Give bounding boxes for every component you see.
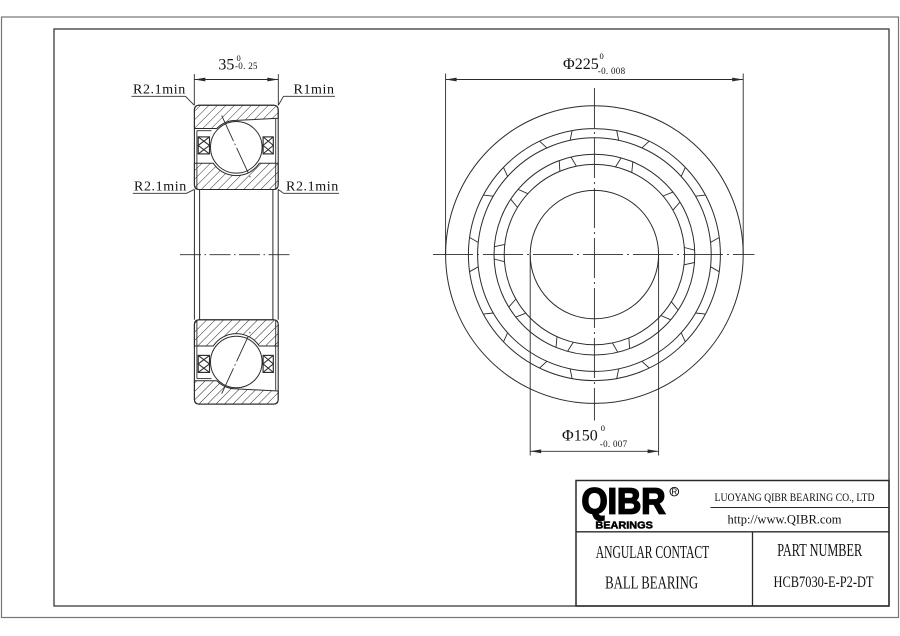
svg-text:HCB7030-E-P2-DT: HCB7030-E-P2-DT [774,574,874,591]
svg-text:http://www.QIBR.com: http://www.QIBR.com [728,513,842,527]
svg-text:BEARINGS: BEARINGS [595,520,653,532]
svg-text:R2.1min: R2.1min [286,180,339,195]
svg-text:LUOYANG QIBR BEARING CO., LTD: LUOYANG QIBR BEARING CO., LTD [715,490,875,504]
svg-text:Φ150: Φ150 [562,427,598,444]
svg-text:-0. 007: -0. 007 [600,439,628,449]
svg-text:R: R [671,488,677,497]
svg-text:-0. 25: -0. 25 [235,61,258,71]
svg-text:QIBR: QIBR [582,481,666,522]
svg-text:R1min: R1min [294,83,335,98]
svg-text:Φ225: Φ225 [563,56,599,73]
svg-text:0: 0 [601,423,605,433]
svg-text:35: 35 [218,56,234,73]
svg-text:R2.1min: R2.1min [133,83,186,98]
svg-text:ANGULAR CONTACT: ANGULAR CONTACT [596,542,710,562]
svg-text:PART NUMBER: PART NUMBER [777,540,862,560]
svg-text:-0. 008: -0. 008 [598,66,626,76]
svg-text:BALL BEARING: BALL BEARING [605,573,698,593]
svg-text:0: 0 [600,51,604,61]
svg-text:R2.1min: R2.1min [134,180,187,195]
